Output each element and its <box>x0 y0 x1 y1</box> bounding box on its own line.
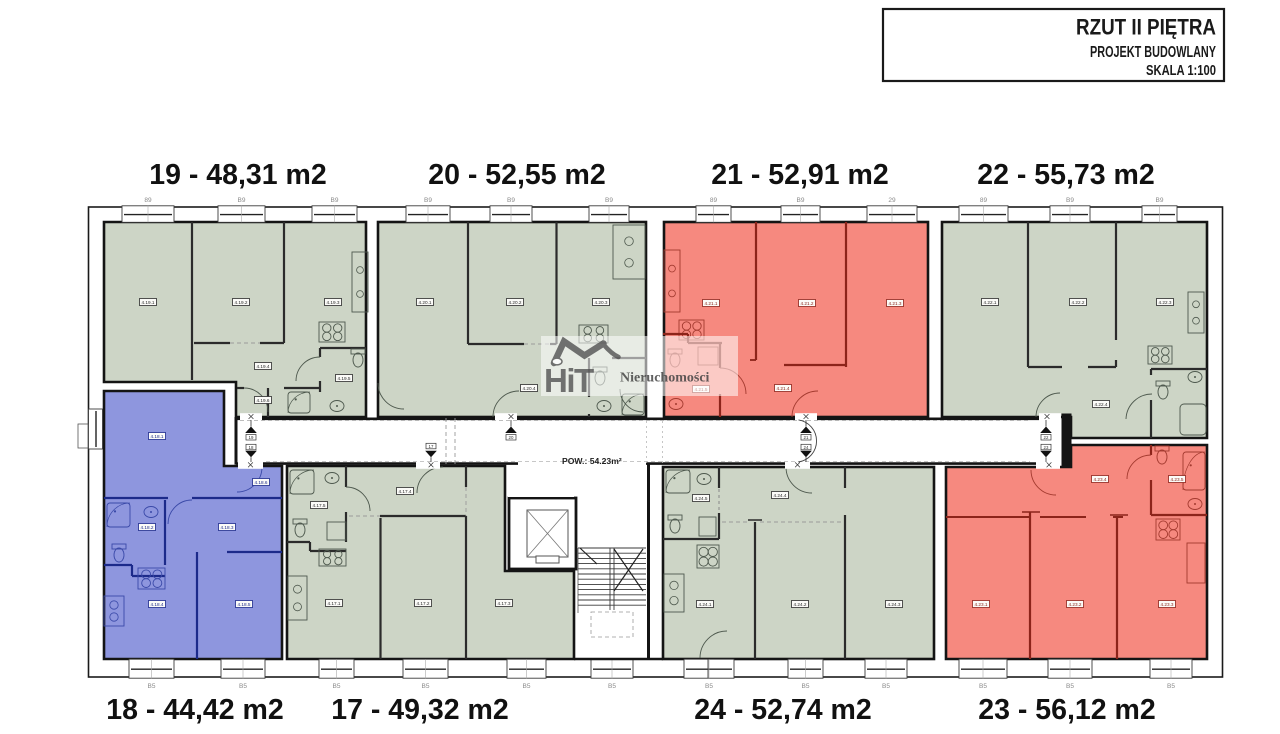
svg-text:B5: B5 <box>1167 683 1175 690</box>
svg-text:4.24.3: 4.24.3 <box>887 602 900 607</box>
svg-text:4.22.3: 4.22.3 <box>1158 300 1171 305</box>
svg-text:B5: B5 <box>705 683 713 690</box>
svg-text:4.23.1: 4.23.1 <box>974 602 987 607</box>
svg-text:SKALA 1:100: SKALA 1:100 <box>1146 63 1216 79</box>
svg-text:23 - 56,12 m2: 23 - 56,12 m2 <box>978 694 1155 726</box>
svg-text:B5: B5 <box>148 683 156 690</box>
svg-text:4.19.4: 4.19.4 <box>256 364 269 369</box>
svg-text:4.21.4: 4.21.4 <box>776 386 789 391</box>
svg-text:4.17.3: 4.17.3 <box>497 601 510 606</box>
svg-text:B9: B9 <box>424 197 432 204</box>
svg-text:24 - 52,74 m2: 24 - 52,74 m2 <box>694 694 871 726</box>
svg-text:B9: B9 <box>797 197 805 204</box>
svg-text:B5: B5 <box>422 683 430 690</box>
svg-text:89: 89 <box>710 197 718 204</box>
svg-text:4.24.4: 4.24.4 <box>773 493 786 498</box>
svg-text:PROJEKT BUDOWLANY: PROJEKT BUDOWLANY <box>1090 44 1216 61</box>
svg-text:21 - 52,91 m2: 21 - 52,91 m2 <box>711 159 888 191</box>
svg-text:4.19.6: 4.19.6 <box>256 398 269 403</box>
svg-text:4.24.5: 4.24.5 <box>694 496 707 501</box>
svg-text:4.19.2: 4.19.2 <box>234 300 247 305</box>
svg-text:B9: B9 <box>1156 197 1164 204</box>
svg-text:B5: B5 <box>882 683 890 690</box>
svg-text:4.24.2: 4.24.2 <box>793 602 806 607</box>
svg-text:4.18.3: 4.18.3 <box>220 525 233 530</box>
svg-text:18: 18 <box>249 445 254 450</box>
svg-text:4.23.3: 4.23.3 <box>1160 602 1173 607</box>
svg-text:HiT: HiT <box>544 362 594 399</box>
svg-text:4.21.1: 4.21.1 <box>704 301 717 306</box>
svg-text:4.17.2: 4.17.2 <box>416 601 429 606</box>
svg-text:19 - 48,31 m2: 19 - 48,31 m2 <box>149 159 326 191</box>
svg-text:4.18.2: 4.18.2 <box>140 525 153 530</box>
svg-text:4.22.1: 4.22.1 <box>983 300 996 305</box>
svg-text:4.23.5: 4.23.5 <box>1170 477 1183 482</box>
svg-text:19: 19 <box>249 435 254 440</box>
svg-text:4.20.4: 4.20.4 <box>522 386 535 391</box>
svg-text:89: 89 <box>144 197 152 204</box>
svg-text:4.19.1: 4.19.1 <box>141 300 154 305</box>
svg-text:B9: B9 <box>331 197 339 204</box>
svg-text:B5: B5 <box>523 683 531 690</box>
svg-text:4.24.1: 4.24.1 <box>698 602 711 607</box>
svg-text:4.17.5: 4.17.5 <box>312 503 325 508</box>
svg-text:B5: B5 <box>802 683 810 690</box>
svg-text:4.23.4: 4.23.4 <box>1093 477 1106 482</box>
svg-text:B5: B5 <box>1066 683 1074 690</box>
svg-text:B5: B5 <box>608 683 616 690</box>
svg-text:4.20.3: 4.20.3 <box>594 300 607 305</box>
svg-text:B9: B9 <box>605 197 613 204</box>
svg-text:24: 24 <box>804 445 809 450</box>
svg-text:B5: B5 <box>979 683 987 690</box>
svg-text:22: 22 <box>1044 435 1049 440</box>
svg-text:20: 20 <box>509 435 514 440</box>
svg-text:4.23.2: 4.23.2 <box>1068 602 1081 607</box>
svg-text:POW.: 54.23m²: POW.: 54.23m² <box>562 456 622 466</box>
svg-text:Nieruchomości: Nieruchomości <box>620 371 710 386</box>
svg-text:B5: B5 <box>333 683 341 690</box>
svg-text:17: 17 <box>429 444 434 449</box>
svg-text:4.18.1: 4.18.1 <box>150 434 163 439</box>
svg-text:B9: B9 <box>507 197 515 204</box>
svg-text:23: 23 <box>1044 445 1049 450</box>
svg-text:B9: B9 <box>1066 197 1074 204</box>
svg-text:4.22.4: 4.22.4 <box>1094 402 1107 407</box>
svg-text:4.22.2: 4.22.2 <box>1071 300 1084 305</box>
svg-text:4.17.4: 4.17.4 <box>398 489 411 494</box>
svg-text:4.18.5: 4.18.5 <box>237 602 250 607</box>
svg-text:4.21.2: 4.21.2 <box>800 301 813 306</box>
svg-text:4.18.4: 4.18.4 <box>150 602 163 607</box>
svg-text:4.17.1: 4.17.1 <box>327 601 340 606</box>
svg-text:4.19.3: 4.19.3 <box>326 300 339 305</box>
svg-text:17 - 49,32 m2: 17 - 49,32 m2 <box>331 694 508 726</box>
svg-text:4.20.1: 4.20.1 <box>418 300 431 305</box>
svg-text:21: 21 <box>804 435 809 440</box>
svg-text:89: 89 <box>980 197 988 204</box>
svg-text:4.21.3: 4.21.3 <box>888 301 901 306</box>
svg-text:RZUT II PIĘTRA: RZUT II PIĘTRA <box>1076 15 1216 40</box>
svg-text:22 - 55,73 m2: 22 - 55,73 m2 <box>977 159 1154 191</box>
svg-text:29: 29 <box>888 197 896 204</box>
svg-text:4.20.2: 4.20.2 <box>508 300 521 305</box>
svg-text:B9: B9 <box>238 197 246 204</box>
svg-text:20 - 52,55 m2: 20 - 52,55 m2 <box>428 159 605 191</box>
svg-text:B5: B5 <box>239 683 247 690</box>
svg-text:18 - 44,42 m2: 18 - 44,42 m2 <box>106 694 283 726</box>
svg-text:4.19.5: 4.19.5 <box>337 376 350 381</box>
svg-text:4.18.6: 4.18.6 <box>254 480 267 485</box>
